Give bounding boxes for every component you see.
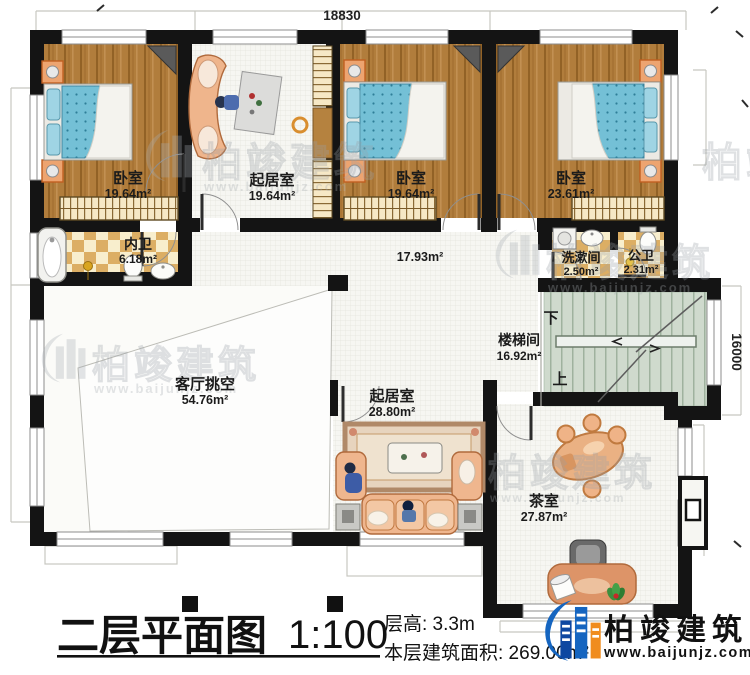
stool [609,427,626,444]
room-label-bedroom2: 卧室 [396,169,426,187]
watermark: 柏竣建筑 [702,141,750,185]
room-area-living-lower: 28.80m² [369,405,416,419]
side-table [336,504,360,530]
pillow [644,122,657,152]
flue-box [680,478,706,548]
stairwell-floor [544,292,707,406]
brand-name: 柏竣建筑 [604,613,748,647]
watermark-brand: 柏竣建筑 [488,453,656,495]
person-body [402,510,416,522]
room-area-void: 54.76m² [182,393,229,407]
window [366,30,448,44]
armchair [336,452,366,500]
window [664,75,678,160]
person-body [224,95,239,110]
room-area-public-bath: 2.31m² [624,264,659,276]
room-label-washroom: 洗漱间 [561,250,600,265]
column [328,275,348,291]
room-area-hallway: 17.93m² [397,250,444,264]
room-area-bedroom3: 23.61m² [548,187,595,201]
pillow [644,88,657,118]
floor-plan-canvas: 柏竣建筑 www.baijunjz.com 柏竣建筑 www.baijunjz.… [0,0,750,675]
armchair [452,452,482,500]
pillow [47,89,60,120]
room-label-tea-room: 茶室 [529,492,559,510]
person-body [345,473,362,493]
plan-title: 二层平面图 [57,612,267,659]
side-table [458,504,482,530]
person-head [403,501,414,512]
room-area-stairwell: 16.92m² [497,349,542,363]
room-area-washroom: 2.50m² [564,266,599,278]
brand-website: www.baijunjz.com [603,645,750,661]
wall-hall-stub [330,380,338,416]
pillow [347,88,360,118]
room-label-living-upper: 起居室 [248,171,294,189]
title-underline [57,655,380,658]
coffee-table [388,443,442,473]
window [707,300,721,385]
wall-stair-bottom [664,406,721,420]
room-label-public-bath: 公卫 [628,248,654,263]
room-label-bedroom3: 卧室 [556,169,586,187]
window [57,532,163,546]
window [230,532,292,546]
room-label-stairwell: 楼梯间 [498,332,540,348]
pillow [47,124,60,155]
room-label-inner-bath: 内卫 [124,236,152,252]
plan-scale: 1:100 [288,613,388,657]
stool [584,415,601,432]
person-head [345,463,356,474]
column-marker [182,596,198,612]
sofa [362,494,458,534]
window [62,30,146,44]
room-area-living-upper: 19.64m² [249,189,296,203]
room-area-bedroom2: 19.64m² [388,187,435,201]
dimension-top: 18830 [323,8,361,23]
column-marker [327,596,343,612]
floor-plan-page: 柏竣建筑 www.baijunjz.com 柏竣建筑 www.baijunjz.… [0,0,750,675]
window [213,30,297,44]
room-label-void: 客厅挑空 [174,375,235,393]
floor-drain [84,262,93,271]
hallway-floor [192,232,538,286]
window [540,30,632,44]
room-label-bedroom1: 卧室 [113,169,143,187]
room-area-inner-bath: 6.18m² [119,252,157,266]
room-area-bedroom1: 19.64m² [105,187,152,201]
room-area-tea-room: 27.87m² [521,510,568,524]
floor-area-label: 本层建筑面积: 269.00m² [384,642,589,664]
dimension-right: 16000 [729,333,744,371]
stool [558,426,575,443]
floor-height-label: 层高: 3.3m [384,613,475,635]
stairs-down-label: 下 [543,310,558,327]
window [678,428,692,476]
living-lower-furniture [336,424,483,534]
watermark-brand: 柏竣建筑 [702,141,750,185]
stair-rail [556,336,696,347]
room-label-living-lower: 起居室 [368,387,414,405]
bed [558,82,660,160]
watermark-url: www.baijunjz.com [547,280,692,295]
wall-br2-br3 [482,30,496,222]
stairs-up-label: 上 [552,371,567,388]
window [30,428,44,506]
closet [313,46,332,106]
bed [44,84,132,160]
